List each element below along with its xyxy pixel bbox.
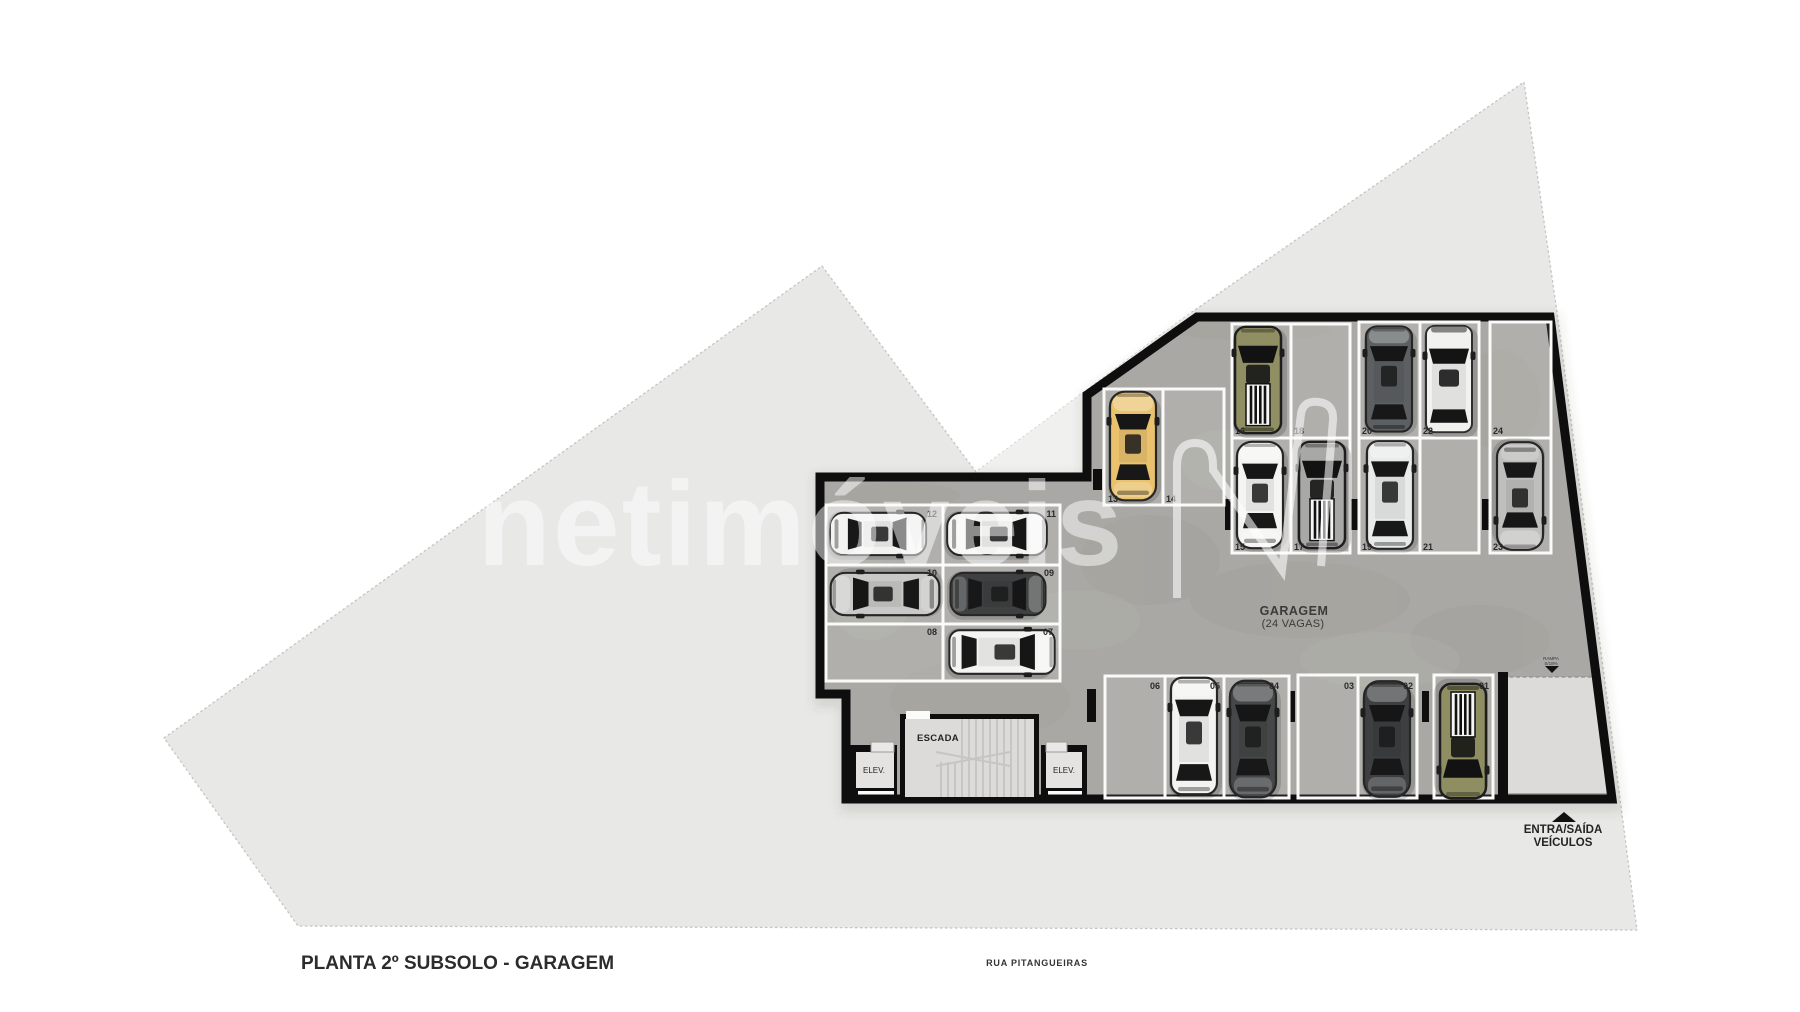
svg-text:VEÍCULOS: VEÍCULOS: [1534, 836, 1593, 849]
svg-text:23: 23: [1493, 542, 1503, 552]
svg-text:16: 16: [1235, 426, 1245, 436]
svg-text:ELEV.: ELEV.: [1053, 766, 1075, 775]
svg-text:01: 01: [1479, 681, 1489, 691]
svg-text:RUA PITANGUEIRAS: RUA PITANGUEIRAS: [986, 958, 1088, 968]
svg-text:06: 06: [1150, 681, 1160, 691]
svg-text:PLANTA 2º SUBSOLO - GARAGEM: PLANTA 2º SUBSOLO - GARAGEM: [301, 953, 614, 974]
svg-text:02: 02: [1403, 681, 1413, 691]
svg-text:17: 17: [1294, 542, 1304, 552]
svg-text:19: 19: [1362, 542, 1372, 552]
svg-text:07: 07: [1043, 627, 1053, 637]
svg-text:(24 VAGAS): (24 VAGAS): [1262, 618, 1325, 630]
svg-text:15: 15: [1235, 542, 1245, 552]
svg-text:08: 08: [927, 627, 937, 637]
svg-text:05: 05: [1210, 681, 1220, 691]
svg-text:ESCADA: ESCADA: [917, 733, 959, 744]
svg-text:04: 04: [1269, 681, 1279, 691]
svg-text:GARAGEM: GARAGEM: [1260, 604, 1329, 618]
svg-text:ENTRA/SAÍDA: ENTRA/SAÍDA: [1524, 823, 1603, 836]
svg-text:24: 24: [1493, 426, 1503, 436]
svg-text:22: 22: [1423, 426, 1433, 436]
svg-text:ELEV.: ELEV.: [863, 766, 885, 775]
svg-text:20: 20: [1362, 426, 1372, 436]
svg-text:21: 21: [1423, 542, 1433, 552]
svg-text:03: 03: [1344, 681, 1354, 691]
svg-text:netimóveis: netimóveis: [478, 457, 1125, 591]
svg-text:S/18%: S/18%: [1544, 661, 1557, 666]
